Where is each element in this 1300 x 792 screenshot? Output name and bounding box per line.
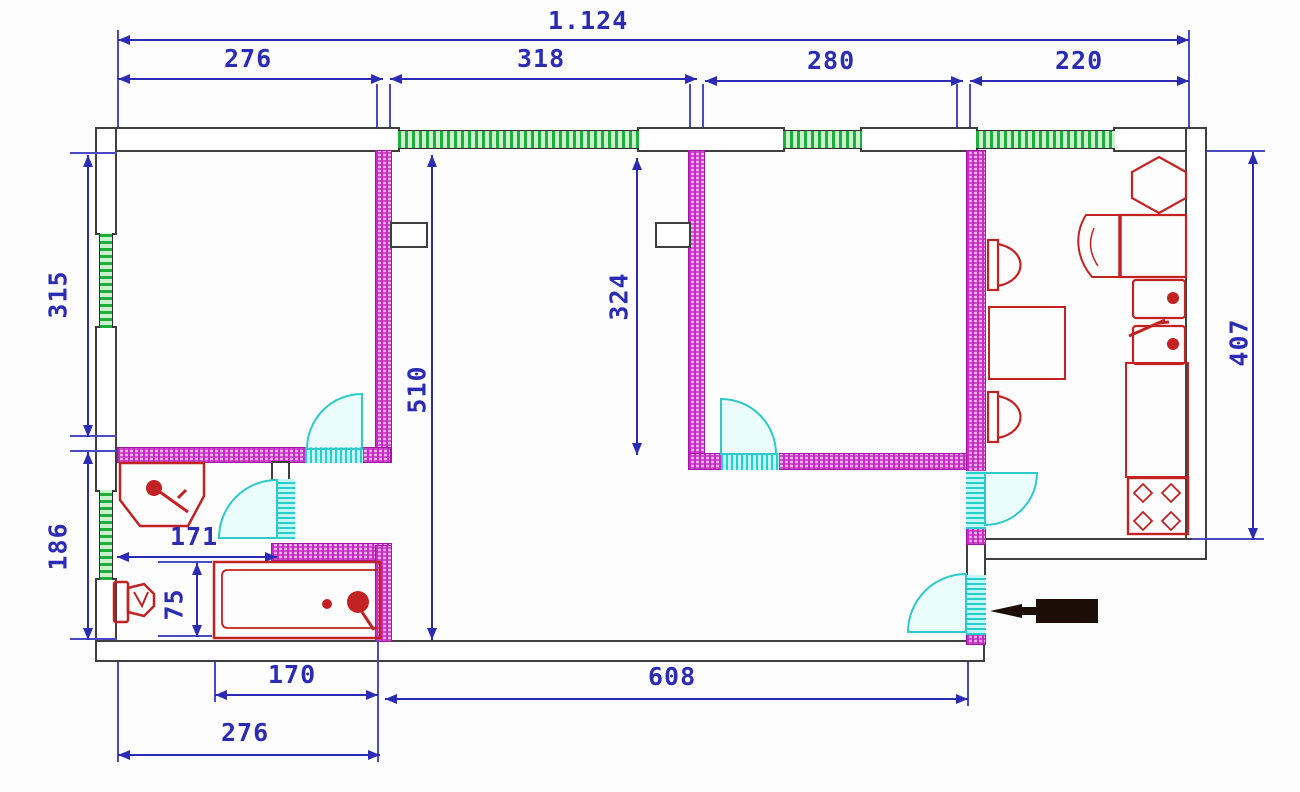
door-arc-room1 [305, 392, 365, 452]
dim-arrow [427, 155, 437, 167]
extension-line [389, 84, 391, 127]
partition-kitchen-left [966, 150, 986, 473]
dim-label-left-b: 186 [46, 522, 71, 570]
dim-line-top-d [970, 80, 1189, 82]
dim-arrow [265, 552, 277, 562]
dim-label-bottom-c: 608 [648, 664, 696, 689]
dim-arrow [1177, 35, 1189, 45]
extension-line [969, 84, 971, 127]
dim-line-overall [118, 39, 1189, 41]
door-opening-entrance [966, 575, 986, 635]
dim-arrow [366, 690, 378, 700]
extension-line [70, 435, 117, 437]
top-wall-segment [860, 127, 978, 152]
dim-label-top-c: 280 [807, 48, 855, 73]
partition-stub-kitchen-door [966, 527, 986, 545]
dim-label-75: 75 [162, 588, 187, 620]
bottom-wall [95, 640, 985, 662]
dim-arrow [970, 76, 982, 86]
dim-line-top-c [705, 80, 963, 82]
dim-arrow [83, 452, 93, 464]
dim-line-bottom-a [215, 694, 378, 696]
top-wall-segment [95, 127, 400, 152]
dim-line-left-b [87, 452, 89, 640]
dim-label-bottom-a: 170 [268, 662, 316, 687]
dim-label-overall: 1.124 [548, 8, 628, 33]
chair-icon [986, 236, 1038, 294]
partition-room2-left [688, 150, 705, 470]
left-wall-segment [95, 326, 117, 492]
dim-arrow [83, 628, 93, 640]
dim-arrow [118, 35, 130, 45]
dim-arrow [632, 158, 642, 170]
door-arc-entrance [906, 572, 968, 634]
dim-arrow [390, 74, 402, 84]
extension-line [70, 638, 117, 640]
extension-line [158, 635, 212, 637]
vent-shaft-icon [655, 222, 691, 248]
dim-arrow [705, 76, 717, 86]
extension-line [689, 84, 691, 127]
dim-arrow [956, 694, 968, 704]
dim-arrow [1248, 152, 1258, 164]
stove-4-burner-icon [1126, 476, 1192, 538]
dim-label-bottom-b: 276 [221, 720, 269, 745]
dim-arrow [385, 694, 397, 704]
corner-cabinet-icon [1068, 212, 1190, 280]
extension-line [70, 152, 117, 154]
door-opening-bathroom [277, 479, 295, 539]
window-top-3 [976, 130, 1115, 149]
extension-line [376, 84, 378, 127]
bathtub-icon [212, 560, 382, 640]
extension-line [70, 450, 117, 452]
dim-arrow [192, 625, 202, 637]
door-arc-bathroom [217, 478, 279, 540]
partition-room1-right [375, 150, 392, 463]
dim-arrow [1248, 528, 1258, 540]
dim-arrow [368, 750, 380, 760]
dim-label-right-a: 407 [1227, 318, 1252, 366]
dim-line-bottom-c [385, 698, 968, 700]
window-left-2 [99, 490, 113, 580]
dim-line-top-a [118, 78, 383, 80]
entrance-wall-stub [966, 543, 986, 577]
dim-line-324 [636, 158, 638, 455]
window-top-1 [398, 130, 639, 149]
partition-wc-top [271, 543, 392, 561]
dim-arrow [83, 155, 93, 167]
dim-arrow [632, 443, 642, 455]
dim-line-left-a [87, 155, 89, 437]
dim-label-top-d: 220 [1055, 48, 1103, 73]
partition-room2-bottom-right [777, 453, 984, 470]
floor-plan-canvas: 1.124 276 318 280 220 315 186 407 [0, 0, 1300, 792]
dim-arrow [83, 425, 93, 437]
dim-arrow [685, 74, 697, 84]
left-wall-segment [95, 127, 117, 235]
partition-room2-bottom-left [688, 453, 723, 470]
dim-arrow [951, 76, 963, 86]
double-sink-icon [1129, 278, 1191, 368]
dim-arrow [427, 628, 437, 640]
chair-icon [986, 388, 1038, 446]
window-left-1 [99, 233, 113, 328]
hexagon-fixture-icon [1127, 155, 1191, 215]
kitchen-bottom-wall [984, 538, 1207, 560]
dim-label-left-a: 315 [46, 270, 71, 318]
vent-shaft-icon [390, 222, 428, 248]
dim-arrow [117, 552, 129, 562]
dim-label-510: 510 [405, 365, 430, 413]
counter-icon [1125, 362, 1189, 478]
dim-line-171 [117, 556, 277, 558]
dim-label-324: 324 [607, 272, 632, 320]
entrance-direction-arrow-icon [988, 594, 1100, 628]
extension-line [158, 561, 212, 563]
extension-line [956, 84, 958, 127]
dim-arrow [118, 74, 130, 84]
door-arc-room2 [719, 397, 779, 457]
dim-label-top-a: 276 [224, 46, 272, 71]
extension-line [377, 640, 379, 762]
top-wall-segment [637, 127, 785, 152]
dim-arrow [192, 563, 202, 575]
window-top-2 [783, 130, 862, 149]
dim-label-171: 171 [170, 524, 218, 549]
partition-bathroom-top-stub [361, 447, 391, 463]
dim-line-bottom-b [118, 754, 380, 756]
dim-line-top-b [390, 78, 697, 80]
extension-line [117, 662, 119, 762]
dim-arrow [1177, 76, 1189, 86]
door-arc-kitchen [983, 471, 1039, 527]
dim-label-top-b: 318 [517, 46, 565, 71]
dim-arrow [215, 690, 227, 700]
extension-line [702, 84, 704, 127]
dim-arrow [118, 750, 130, 760]
table-icon [988, 306, 1066, 380]
dim-arrow [371, 74, 383, 84]
